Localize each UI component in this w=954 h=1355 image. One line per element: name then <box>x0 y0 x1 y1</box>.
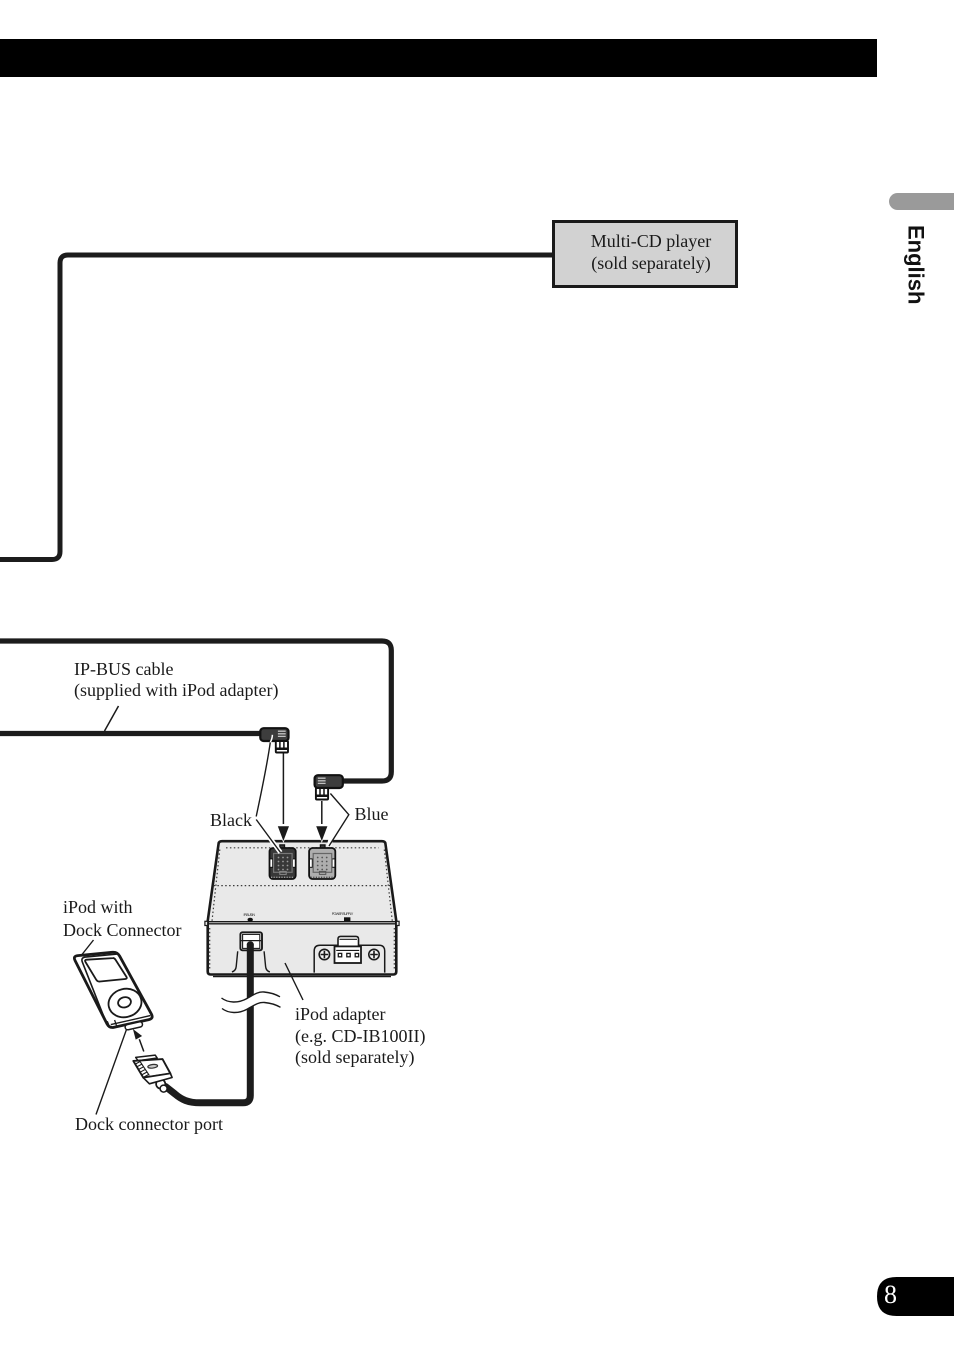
svg-text:IP-BUS IN: IP-BUS IN <box>244 913 256 917</box>
svg-text:POWER SUPPLY: POWER SUPPLY <box>332 912 354 916</box>
svg-text:8: 8 <box>884 1280 897 1309</box>
